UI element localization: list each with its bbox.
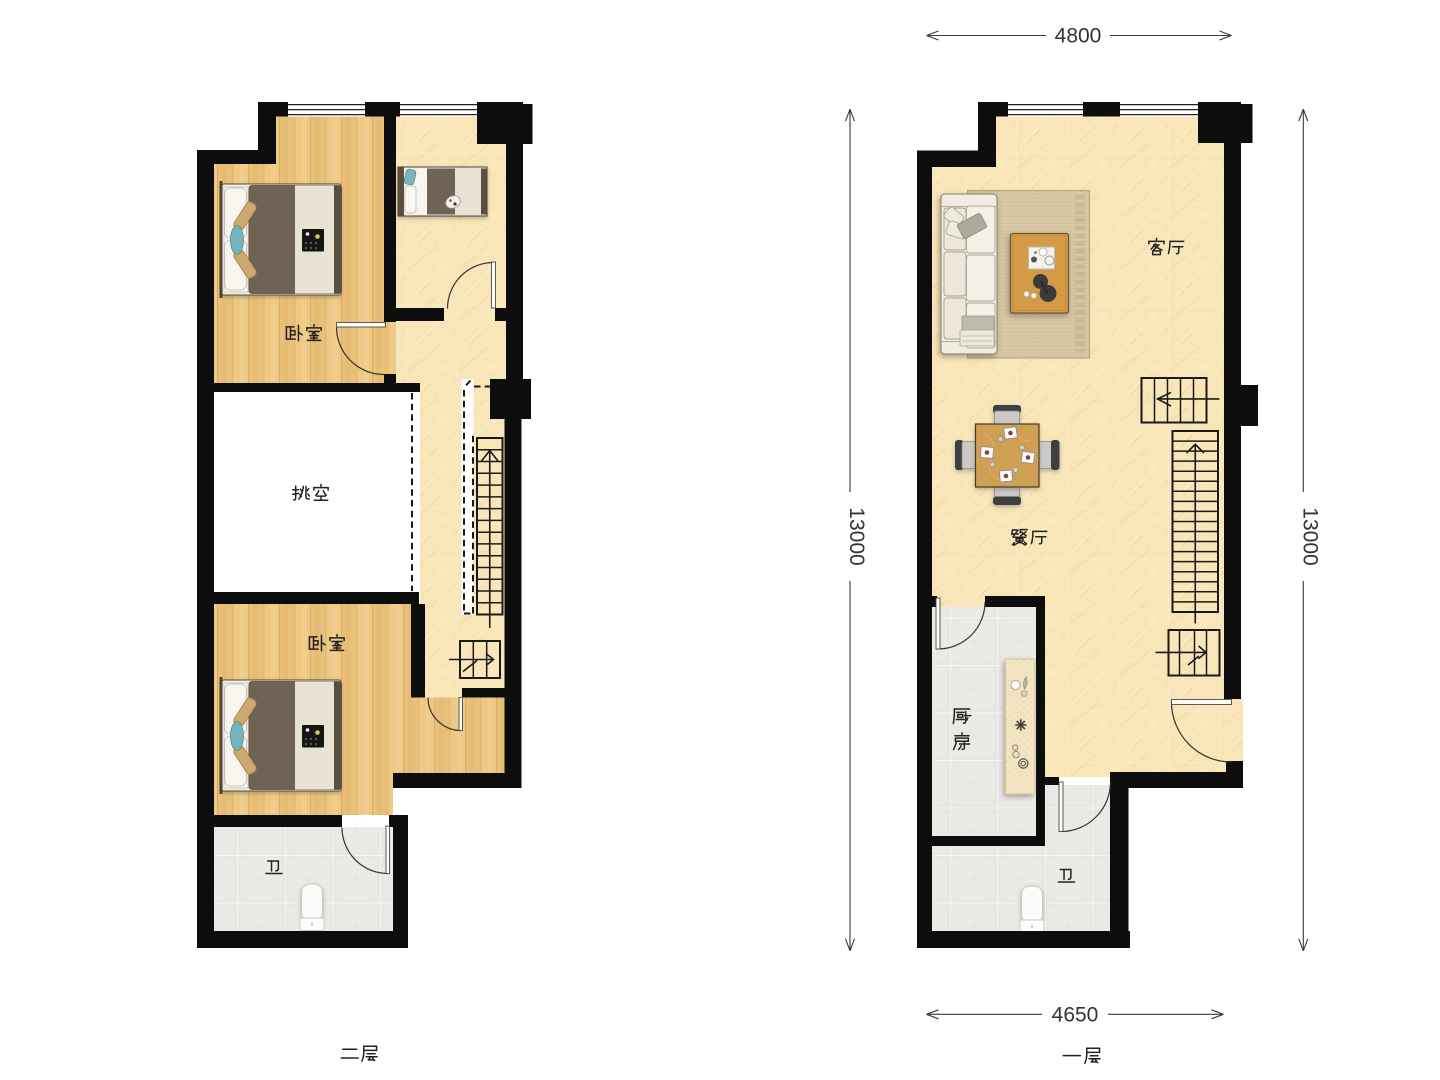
svg-text:4800: 4800 bbox=[1055, 25, 1102, 48]
svg-text:13000: 13000 bbox=[1298, 507, 1321, 565]
svg-text:4650: 4650 bbox=[1052, 1003, 1099, 1026]
svg-text:13000: 13000 bbox=[845, 507, 868, 565]
